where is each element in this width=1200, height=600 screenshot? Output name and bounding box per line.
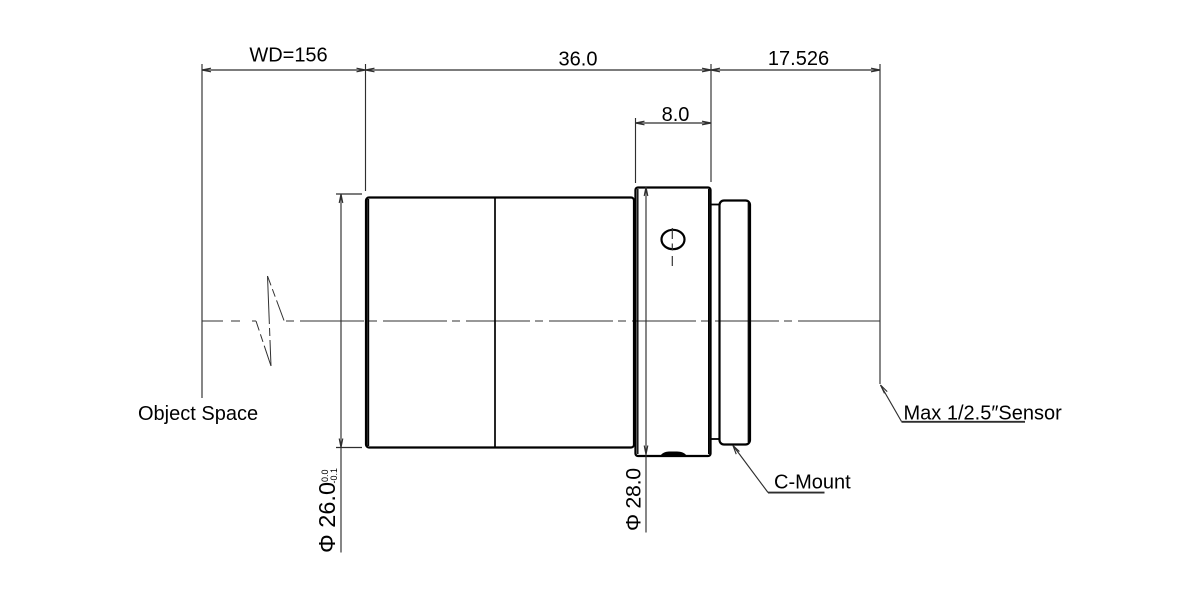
svg-text:C-Mount: C-Mount (774, 472, 851, 494)
svg-text:Object Space: Object Space (138, 403, 258, 425)
svg-text:Max 1/2.5″Sensor: Max 1/2.5″Sensor (904, 403, 1063, 425)
svg-text:8.0: 8.0 (662, 104, 690, 126)
svg-text:36.0: 36.0 (559, 49, 598, 71)
svg-text:WD=156: WD=156 (249, 45, 327, 67)
svg-text:Φ 28.0: Φ 28.0 (622, 468, 646, 531)
svg-text:Φ 26.0: Φ 26.0 (314, 482, 340, 553)
svg-text:17.526: 17.526 (768, 48, 829, 70)
svg-text:-0.1: -0.1 (329, 468, 339, 484)
